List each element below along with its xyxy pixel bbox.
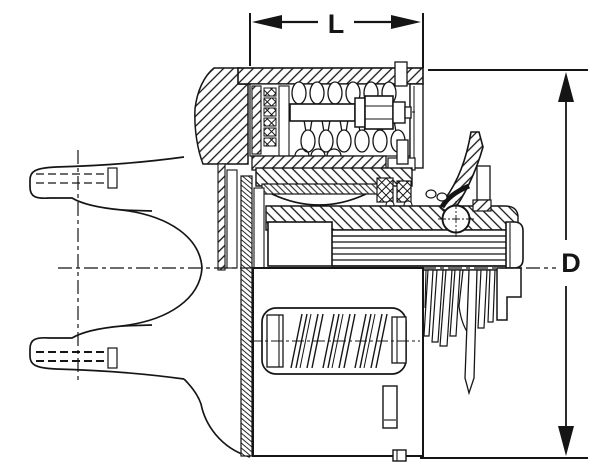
housing-tab <box>393 450 406 461</box>
dimension-D-label: D <box>561 248 581 278</box>
hub-rail <box>332 230 510 236</box>
end-cap <box>506 222 523 268</box>
diaphragm-spring-arc <box>272 194 366 205</box>
shaft-spline-lines <box>332 242 506 266</box>
bolt-shaft <box>290 104 355 121</box>
arrow-right-icon <box>391 15 421 29</box>
seal-block-1 <box>377 178 393 202</box>
long-finger <box>465 270 477 393</box>
bolt-collar <box>355 98 365 127</box>
yoke-bushing-upper <box>108 168 117 188</box>
arrow-down-icon <box>558 426 574 456</box>
hub-block <box>268 222 332 266</box>
yoke-upper-ear <box>30 157 184 211</box>
step-block <box>497 268 521 320</box>
bolt-tip <box>405 107 411 118</box>
arrow-left-icon <box>252 15 282 29</box>
bolt-nub <box>393 102 405 123</box>
lever-support-bar <box>477 166 490 200</box>
lever-rivet-1 <box>426 190 436 198</box>
yoke-lower-silhouette <box>184 379 250 457</box>
housing-right-wall <box>410 84 423 168</box>
spring-housing <box>238 62 423 170</box>
hex-head <box>365 96 393 129</box>
bell-wall-tick-strip <box>241 176 252 456</box>
window-seat-right <box>392 317 406 363</box>
locating-pin <box>397 140 408 164</box>
yoke <box>30 157 250 457</box>
bell-housing <box>253 268 426 461</box>
seal-block-2 <box>397 181 411 202</box>
clutch-cross-section-figure: L D <box>0 0 600 475</box>
dimension-D: D <box>420 70 588 458</box>
arrow-up-icon <box>558 72 574 102</box>
disc-fingers <box>424 268 521 393</box>
housing-slot <box>383 386 397 428</box>
housing-top-plug <box>395 62 407 86</box>
yoke-bushing-lower <box>108 348 117 368</box>
lever-rivet-2 <box>437 193 447 201</box>
clutch-cross-section-drawing: L D <box>0 0 600 475</box>
dimension-L-label: L <box>328 9 345 39</box>
lever-foot <box>473 200 491 211</box>
dimension-L: L <box>250 9 423 68</box>
friction-plate-stack <box>252 86 289 156</box>
pack-plate-B <box>262 184 380 194</box>
